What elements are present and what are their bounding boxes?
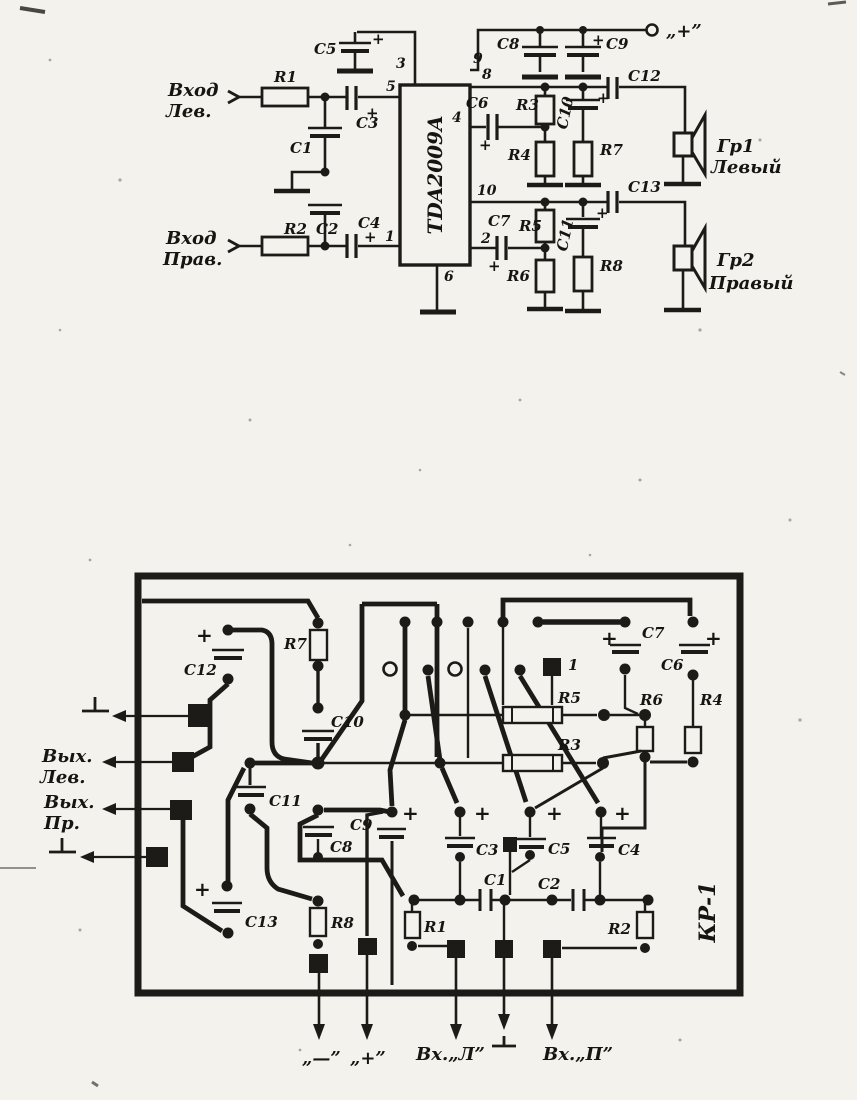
schematic-labels: Вход Лев. Вход Прав. „+” Гр1 Левый Гр2 П… bbox=[162, 21, 793, 294]
pcb-plus-c7: + bbox=[601, 626, 618, 650]
plus-c7: + bbox=[488, 257, 501, 275]
schematic: TDA2009A bbox=[162, 21, 793, 312]
label-out-left-1: Вых. bbox=[41, 746, 93, 767]
label-c2: C2 bbox=[316, 220, 338, 238]
plus-c6: + bbox=[479, 136, 492, 154]
label-r6: R6 bbox=[506, 267, 530, 285]
pcb-label-r4: R4 bbox=[699, 691, 723, 709]
pin-6: 6 bbox=[444, 269, 454, 285]
plus-c9: + bbox=[592, 31, 605, 49]
pcb-label-c6: C6 bbox=[661, 656, 684, 674]
label-out-left-2: Лев. bbox=[39, 767, 85, 788]
plus-c13: + bbox=[596, 204, 609, 222]
pin-5: 5 bbox=[386, 79, 396, 95]
pcb-plus-c3: + bbox=[474, 801, 491, 825]
label-input-left-2: Лев. bbox=[165, 101, 211, 122]
pcb-board-label: КР-1 bbox=[695, 882, 721, 944]
pcb-label-c8: C8 bbox=[330, 838, 353, 856]
pcb-layout: Вых. Лев. Вых. Пр. bbox=[39, 576, 740, 1069]
label-c8: C8 bbox=[497, 35, 520, 53]
label-c13: C13 bbox=[628, 178, 661, 196]
pcb-plus-c13: + bbox=[194, 877, 211, 901]
page-canvas: TDA2009A bbox=[0, 0, 857, 1100]
pcb-label-c5: C5 bbox=[548, 840, 570, 858]
label-r5: R5 bbox=[518, 217, 542, 235]
label-c10: C10 bbox=[553, 94, 578, 130]
pcb-plus-c6: + bbox=[705, 626, 722, 650]
pin-1: 1 bbox=[385, 229, 395, 245]
pin-4: 4 bbox=[452, 110, 462, 126]
pcb-label-r3: R3 bbox=[557, 736, 581, 754]
pcb-plus-c5: + bbox=[546, 801, 563, 825]
label-r3: R3 bbox=[515, 96, 539, 114]
pcb-plus-c4: + bbox=[614, 801, 631, 825]
pcb-label-r5: R5 bbox=[557, 689, 581, 707]
label-supply-plus: „+” bbox=[666, 21, 702, 42]
pcb-label-r6: R6 bbox=[639, 691, 663, 709]
pcb-label-c9: C9 bbox=[350, 816, 373, 834]
label-r2: R2 bbox=[283, 220, 307, 238]
label-speaker1-2: Левый bbox=[710, 157, 782, 178]
label-out-right-2: Пр. bbox=[43, 813, 80, 834]
pcb-label-c1: C1 bbox=[484, 871, 506, 889]
label-r1: R1 bbox=[273, 68, 297, 86]
scanned-schematic-page: TDA2009A bbox=[0, 0, 857, 1100]
pcb-label-r2: R2 bbox=[607, 920, 631, 938]
label-r8: R8 bbox=[599, 257, 623, 275]
label-c9: C9 bbox=[606, 35, 629, 53]
pcb-label-c10: C10 bbox=[331, 713, 364, 731]
pcb-plus-c12: + bbox=[196, 623, 213, 647]
pin-8: 8 bbox=[482, 67, 492, 83]
pin-2: 2 bbox=[480, 231, 491, 247]
label-term-in-left: Вх.„Л” bbox=[415, 1044, 485, 1065]
pin-3: 3 bbox=[396, 56, 406, 72]
pcb-label-c4: C4 bbox=[618, 841, 640, 859]
pcb-label-c11: C11 bbox=[269, 792, 302, 810]
plus-c12: + bbox=[597, 89, 610, 107]
label-speaker1-1: Гр1 bbox=[716, 136, 755, 157]
pcb-plus-c9: + bbox=[402, 801, 419, 825]
pcb-pin1-marker: 1 bbox=[568, 656, 578, 674]
label-input-right-1: Вход bbox=[165, 228, 216, 249]
label-speaker2-1: Гр2 bbox=[716, 250, 755, 271]
ic-label: TDA2009A bbox=[423, 116, 447, 235]
pcb-label-c3: C3 bbox=[476, 841, 498, 859]
plus-c4: + bbox=[364, 228, 377, 246]
label-c7: C7 bbox=[488, 212, 511, 230]
label-speaker2-2: Правый bbox=[708, 273, 793, 294]
pcb-label-c2: C2 bbox=[538, 875, 560, 893]
label-input-left-1: Вход bbox=[167, 80, 218, 101]
pcb-label-r8: R8 bbox=[330, 914, 354, 932]
pcb-label-c13: C13 bbox=[245, 913, 278, 931]
pcb-label-r1: R1 bbox=[423, 918, 447, 936]
label-c5: C5 bbox=[314, 40, 336, 58]
label-input-right-2: Прав. bbox=[162, 249, 222, 270]
pcb-label-r7: R7 bbox=[283, 635, 307, 653]
label-term-in-right: Вх.„П” bbox=[542, 1044, 613, 1065]
label-c1: C1 bbox=[290, 139, 312, 157]
pcb-label-c12: C12 bbox=[184, 661, 217, 679]
label-c12: C12 bbox=[628, 67, 661, 85]
label-c6: C6 bbox=[466, 94, 489, 112]
label-r4: R4 bbox=[507, 146, 531, 164]
label-term-plus: „+” bbox=[350, 1048, 386, 1069]
label-term-minus: „—” bbox=[302, 1048, 341, 1069]
pcb-label-c7: C7 bbox=[642, 624, 665, 642]
pin-9: 9 bbox=[473, 51, 483, 67]
plus-c3: + bbox=[366, 104, 379, 122]
pin-10: 10 bbox=[477, 183, 497, 199]
label-c11: C11 bbox=[553, 217, 577, 253]
label-out-right-1: Вых. bbox=[43, 792, 95, 813]
label-r7: R7 bbox=[599, 141, 623, 159]
plus-c5: + bbox=[372, 30, 385, 48]
